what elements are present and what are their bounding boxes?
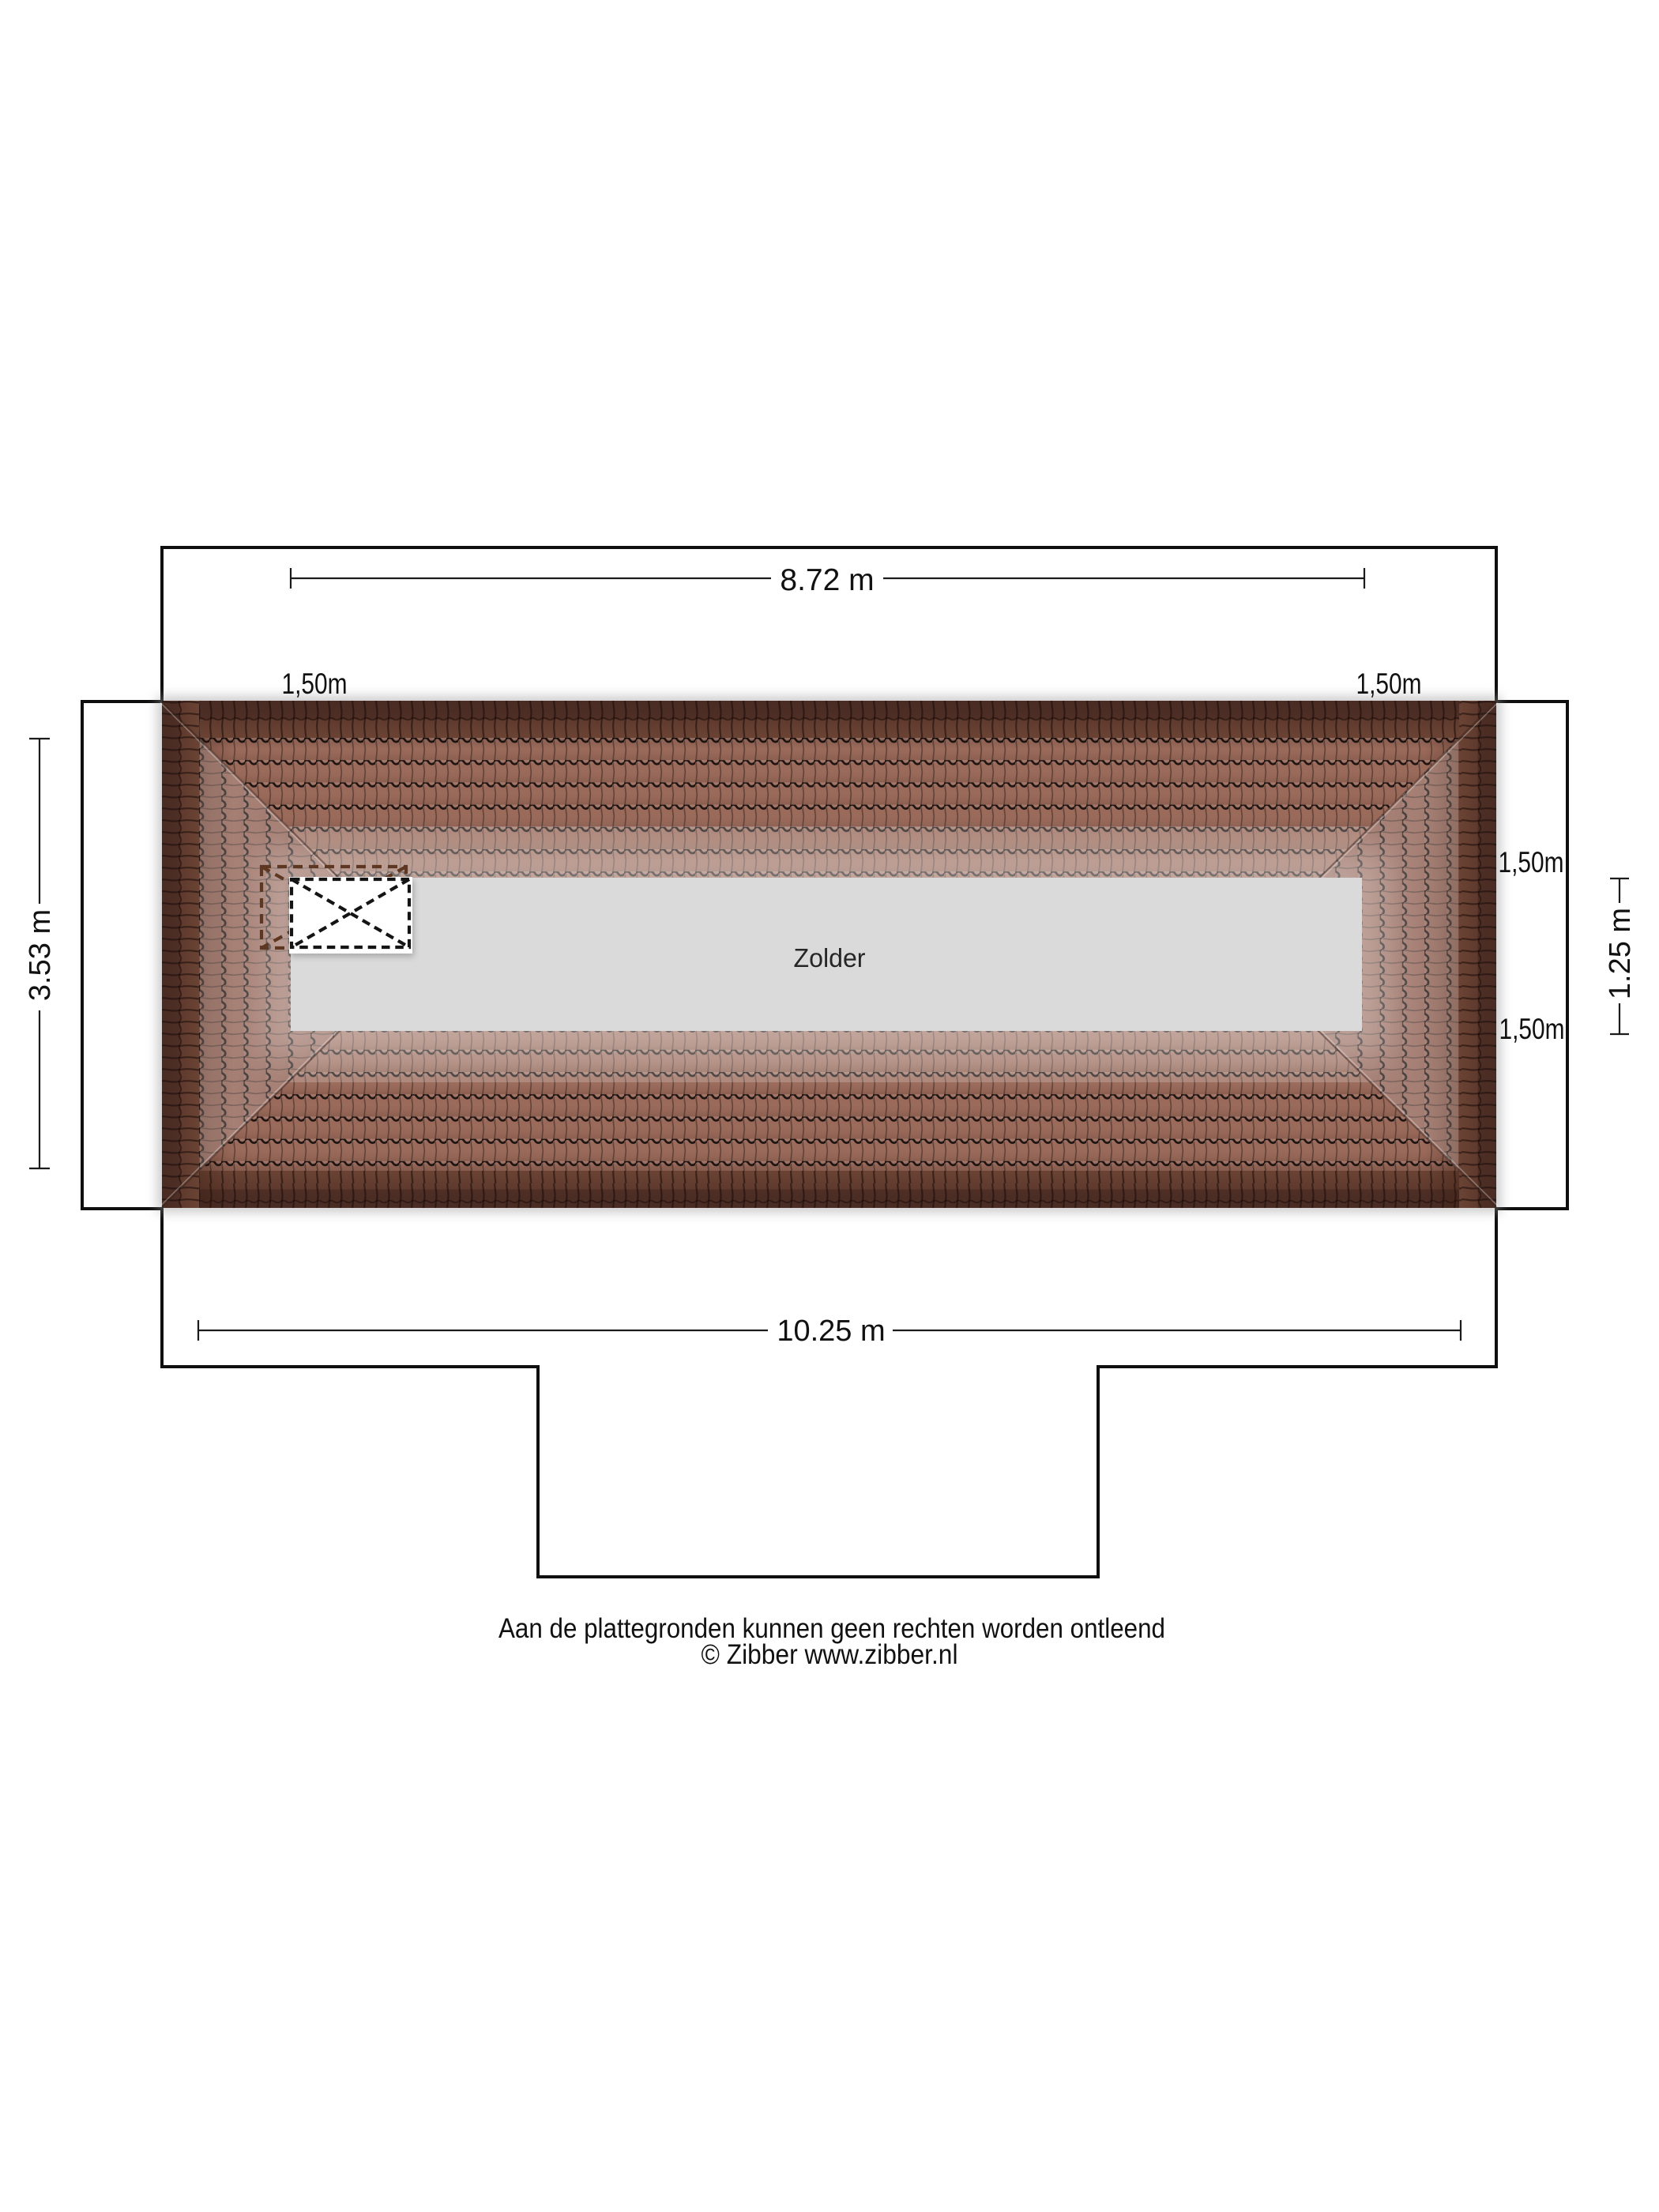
svg-text:Zolder: Zolder [794,943,866,972]
svg-text:1.25 m: 1.25 m [1604,908,1637,999]
svg-text:8.72 m: 8.72 m [780,563,874,597]
svg-text:1,50m: 1,50m [1499,1013,1565,1045]
svg-text:3.53 m: 3.53 m [24,909,57,1001]
svg-text:1,50m: 1,50m [1499,846,1564,878]
svg-text:10.25 m: 10.25 m [777,1315,885,1348]
svg-text:© Zibber www.zibber.nl: © Zibber www.zibber.nl [702,1639,958,1670]
svg-text:1,50m: 1,50m [282,668,348,700]
svg-text:1,50m: 1,50m [1356,668,1422,700]
